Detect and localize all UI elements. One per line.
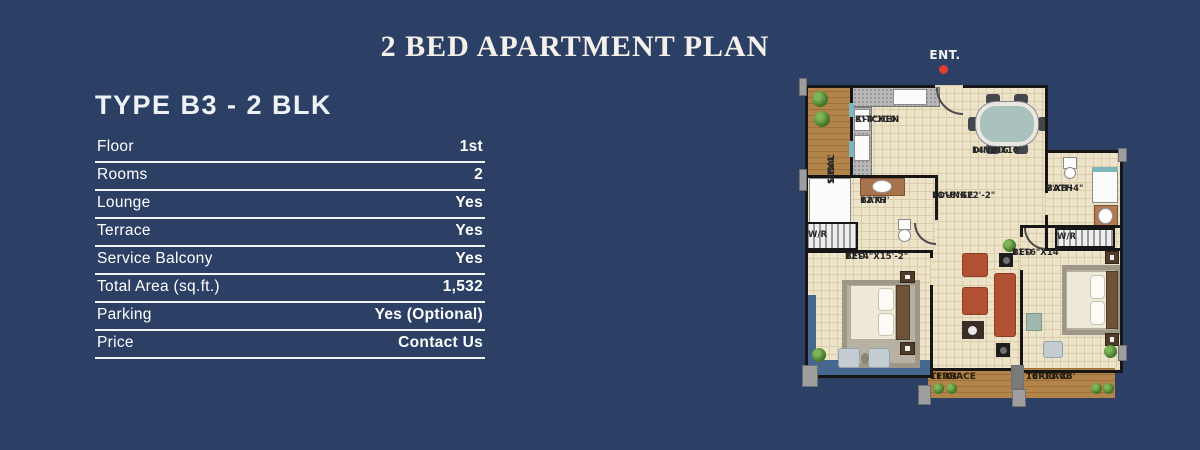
toilet-bowl [898,229,911,242]
pillar [1012,389,1026,407]
spec-label: Total Area (sq.ft.) [97,278,220,296]
wall [1045,85,1048,153]
wash-basin [872,180,892,193]
wall [850,85,853,178]
plant [946,383,957,394]
nightstand [900,271,915,283]
toilet-bowl [1064,167,1076,179]
wall [930,368,1022,371]
ottoman [1026,313,1042,331]
nightstand [900,342,915,355]
pillar [802,365,818,387]
shower [1092,167,1118,203]
spec-value: 1st [460,138,483,156]
armchair [838,348,860,368]
wall [963,85,1048,88]
pillar [799,169,807,191]
pillar [918,385,931,405]
bed-headboard [896,285,910,340]
room-dim: 12'-4"X15'-2" [845,252,908,263]
plant [1091,383,1102,394]
room-dim: 14'-2"X10' [972,146,1021,157]
spec-row-service-balcony: Service Balcony Yes [95,247,485,275]
wall [1120,150,1123,373]
spec-value: Yes [455,250,483,268]
unit-type-heading: TYPE B3 - 2 BLK [95,90,485,121]
room-dim: 11'X3' [930,372,960,383]
spec-row-rooms: Rooms 2 [95,163,485,191]
wall [930,285,933,375]
room-name: W/R [1057,232,1076,243]
side-table [999,253,1013,267]
entrance-dot [939,65,948,74]
pillow [878,288,894,311]
spec-label: Lounge [97,194,151,212]
spec-value: Contact Us [398,334,483,352]
sofa-armchair [962,253,988,277]
pillar [799,78,807,96]
spec-row-lounge: Lounge Yes [95,191,485,219]
wall [805,375,933,378]
plant [933,383,944,394]
spec-row-floor: Floor 1st [95,135,485,163]
armchair [868,348,890,368]
stove [893,89,927,105]
sofa-armchair [962,287,988,315]
spec-row-price: Price Contact Us [95,331,485,359]
pillar [1118,345,1127,361]
spec-label: Floor [97,138,134,156]
floor-plan: ENT. [800,45,1145,410]
spec-value: Yes [455,222,483,240]
spec-label: Price [97,334,134,352]
side-table [996,343,1010,357]
pillow [1090,301,1105,325]
shower-glass [1092,167,1118,172]
spec-row-terrace: Terrace Yes [95,219,485,247]
plant [812,348,826,362]
wall [1045,150,1123,153]
plant [1104,345,1117,358]
dining-table [976,102,1038,146]
spec-label: Parking [97,306,152,324]
spec-value: Yes (Optional) [375,306,483,324]
room-dim: 11'-6"X14' [1012,248,1061,259]
entrance-label: ENT. [922,48,968,62]
pillow [878,313,894,336]
spec-row-parking: Parking Yes (Optional) [95,303,485,331]
kitchen-sink [854,135,870,161]
window-segment [849,141,854,157]
plant [812,91,828,107]
spec-value: 1,532 [443,278,483,296]
spec-label: Terrace [97,222,151,240]
room-name: W/R [808,230,827,241]
pillar [1011,365,1024,389]
side-table [861,353,869,364]
spec-label: Rooms [97,166,148,184]
wall [805,175,938,178]
wall [1020,225,1023,237]
coffee-table-plate [968,326,977,335]
spec-label: Service Balcony [97,250,213,268]
spec-panel: TYPE B3 - 2 BLK Floor 1st Rooms 2 Lounge… [95,90,485,359]
spec-value: Yes [455,194,483,212]
pillar [1118,148,1127,162]
spec-value: 2 [474,166,483,184]
plant [814,111,830,127]
wall [805,85,935,88]
window-segment [849,103,854,117]
spec-row-total-area: Total Area (sq.ft.) 1,532 [95,275,485,303]
wall [1020,270,1023,370]
sofa-long [994,273,1016,337]
wall [1020,225,1123,228]
armchair [1043,341,1063,358]
bed-headboard [1106,271,1118,329]
pillow [1090,275,1105,299]
nightstand [1105,333,1119,346]
plant [1103,383,1114,394]
wall [1045,215,1048,248]
room-dim: 8'-4"X10' [855,115,898,126]
wash-basin [1098,208,1113,224]
wall [930,250,933,258]
room-dim: 7'X8'-4" [1046,184,1083,195]
room-dim: 12'X7' [860,196,890,207]
nightstand [1105,251,1119,264]
room-dim: 10'-11"X3' [1026,372,1075,383]
room-dim: 11'-8"X22'-2" [932,191,995,202]
room-dim: 10'X4' [827,154,838,184]
